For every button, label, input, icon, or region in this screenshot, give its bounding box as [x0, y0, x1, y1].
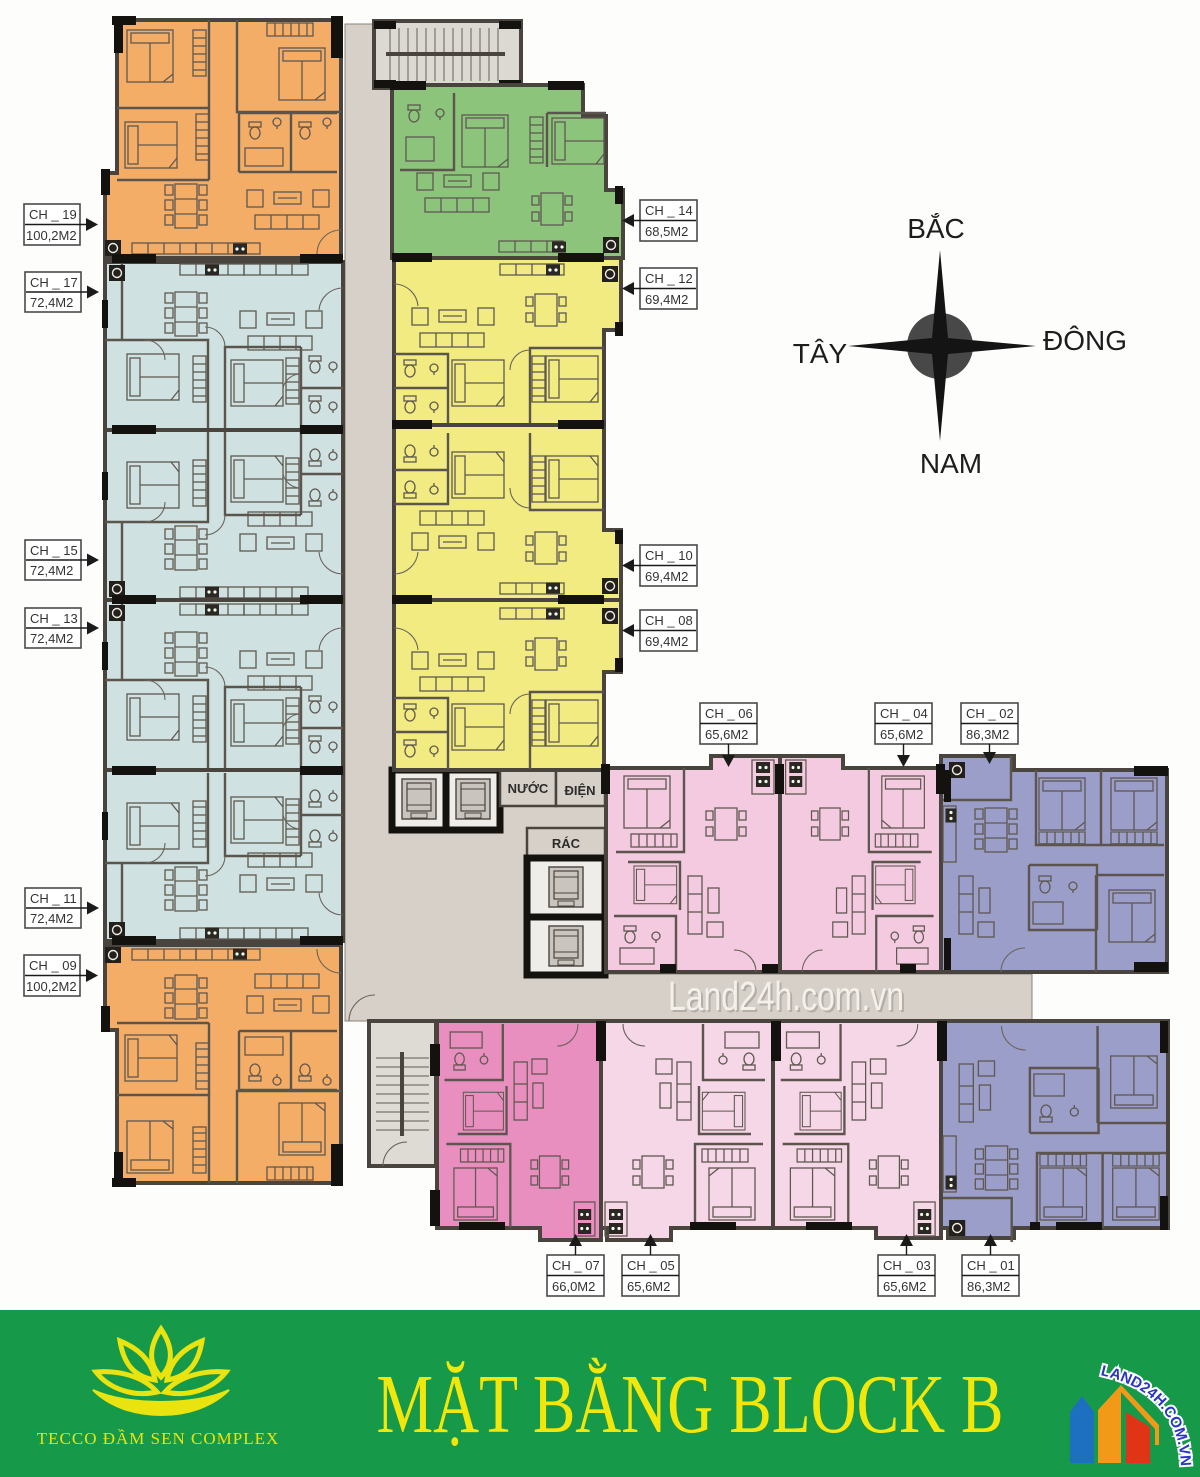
- svg-text:CH _ 17: CH _ 17: [30, 275, 78, 290]
- svg-text:69,4M2: 69,4M2: [645, 634, 688, 649]
- svg-text:BẮC: BẮC: [907, 213, 965, 244]
- svg-text:65,6M2: 65,6M2: [880, 727, 923, 742]
- svg-text:69,4M2: 69,4M2: [645, 569, 688, 584]
- svg-text:MẶT BẰNG BLOCK B: MẶT BẰNG BLOCK B: [377, 1356, 1004, 1451]
- svg-text:65,6M2: 65,6M2: [883, 1279, 926, 1294]
- svg-text:CH _ 05: CH _ 05: [627, 1258, 675, 1273]
- svg-text:CH _ 03: CH _ 03: [883, 1258, 931, 1273]
- svg-text:CH _ 11: CH _ 11: [30, 891, 77, 906]
- svg-text:CH _ 14: CH _ 14: [645, 203, 693, 218]
- svg-text:CH _ 09: CH _ 09: [29, 958, 77, 973]
- svg-text:CH _ 08: CH _ 08: [645, 613, 693, 628]
- svg-text:65,6M2: 65,6M2: [627, 1279, 670, 1294]
- svg-text:ĐIỆN: ĐIỆN: [564, 783, 595, 798]
- svg-text:86,3M2: 86,3M2: [967, 1279, 1010, 1294]
- svg-text:CH _ 10: CH _ 10: [645, 548, 693, 563]
- svg-text:72,4M2: 72,4M2: [30, 563, 73, 578]
- svg-text:72,4M2: 72,4M2: [30, 631, 73, 646]
- svg-text:CH _ 07: CH _ 07: [552, 1258, 600, 1273]
- svg-text:65,6M2: 65,6M2: [705, 727, 748, 742]
- svg-text:ĐÔNG: ĐÔNG: [1043, 325, 1127, 356]
- svg-text:RÁC: RÁC: [552, 836, 581, 851]
- svg-text:69,4M2: 69,4M2: [645, 292, 688, 307]
- svg-text:Land24h.com.vn: Land24h.com.vn: [668, 973, 904, 1019]
- svg-text:CH _ 12: CH _ 12: [645, 271, 693, 286]
- svg-text:CH _ 04: CH _ 04: [880, 706, 928, 721]
- svg-text:CH _ 13: CH _ 13: [30, 611, 78, 626]
- svg-text:TECCO ĐẦM SEN COMPLEX: TECCO ĐẦM SEN COMPLEX: [37, 1429, 280, 1448]
- svg-text:NAM: NAM: [920, 448, 982, 479]
- svg-text:NƯỚC: NƯỚC: [508, 781, 549, 796]
- svg-text:CH _ 01: CH _ 01: [967, 1258, 1015, 1273]
- svg-text:72,4M2: 72,4M2: [30, 911, 73, 926]
- svg-text:66,0M2: 66,0M2: [552, 1279, 595, 1294]
- svg-text:CH _ 06: CH _ 06: [705, 706, 753, 721]
- svg-text:CH _ 02: CH _ 02: [966, 706, 1014, 721]
- svg-text:100,2M2: 100,2M2: [26, 979, 77, 994]
- svg-text:72,4M2: 72,4M2: [30, 295, 73, 310]
- svg-text:CH _ 15: CH _ 15: [30, 543, 78, 558]
- svg-text:CH _ 19: CH _ 19: [29, 207, 77, 222]
- svg-text:86,3M2: 86,3M2: [966, 727, 1009, 742]
- svg-text:100,2M2: 100,2M2: [26, 228, 77, 243]
- svg-text:TÂY: TÂY: [793, 338, 848, 369]
- svg-text:68,5M2: 68,5M2: [645, 224, 688, 239]
